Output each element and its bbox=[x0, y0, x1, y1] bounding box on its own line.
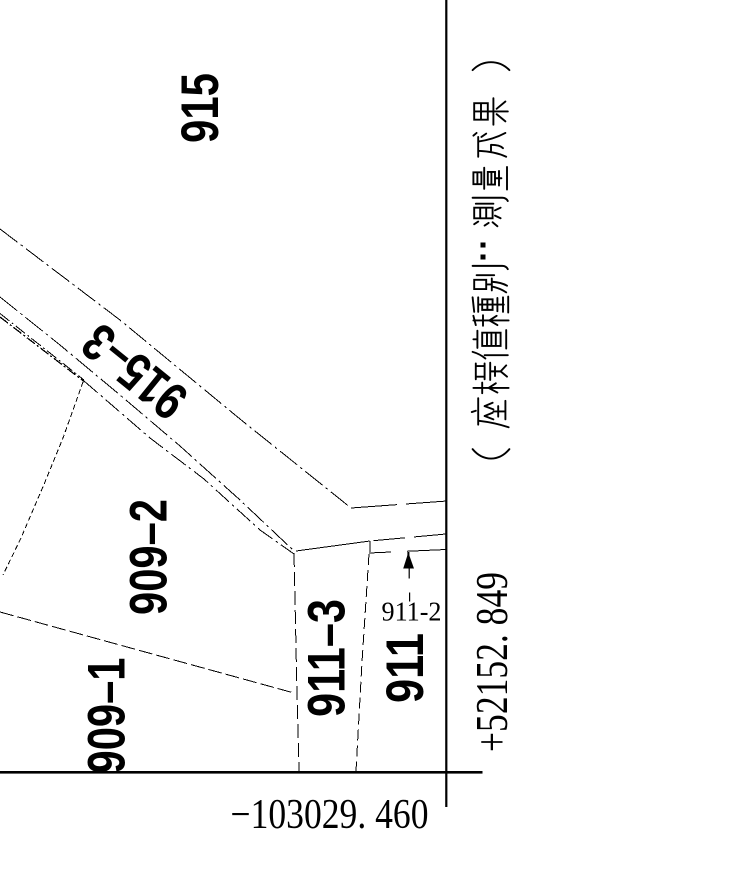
svg-text:915: 915 bbox=[171, 73, 230, 143]
svg-text:−103029. 460: −103029. 460 bbox=[231, 792, 429, 838]
svg-text:+52152. 849: +52152. 849 bbox=[466, 572, 517, 752]
svg-text:915–3: 915–3 bbox=[71, 312, 198, 431]
svg-text:909–2: 909–2 bbox=[120, 499, 179, 615]
svg-text:911: 911 bbox=[376, 633, 435, 703]
svg-text:911–3: 911–3 bbox=[298, 599, 357, 717]
svg-text:909–1: 909–1 bbox=[78, 658, 137, 774]
svg-text:911-2: 911-2 bbox=[382, 597, 442, 627]
